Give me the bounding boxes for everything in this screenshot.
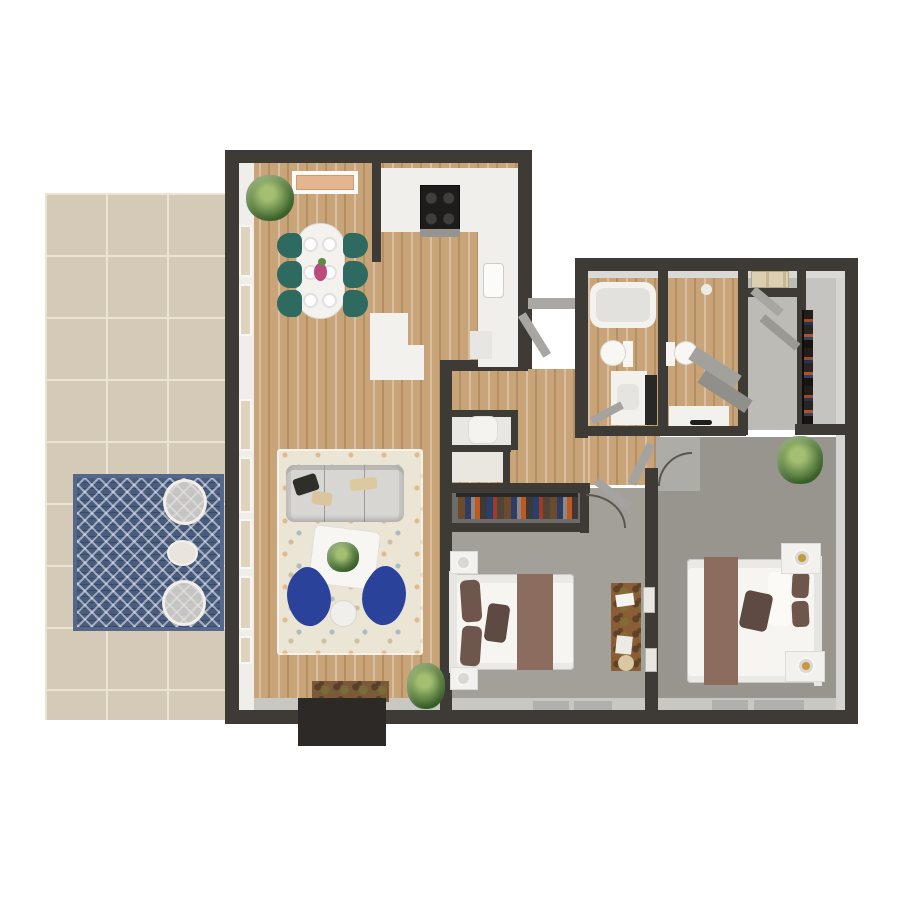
stove-front-panel (420, 229, 460, 237)
wall-top (225, 150, 532, 163)
dining-chair-3 (277, 290, 302, 317)
patio-chair-1 (163, 479, 207, 525)
lamp-2a-shade (798, 554, 806, 562)
place-setting-1 (303, 237, 318, 252)
window-pane-2 (239, 284, 252, 336)
wall-closet-right-bottom (795, 424, 847, 435)
place-setting-2 (322, 237, 337, 252)
wall-closet-b1-bottom (448, 523, 589, 532)
wall-bedroom1-top (448, 483, 590, 493)
toilet-1-bowl (600, 340, 626, 366)
bed-1-pillow-a (460, 579, 483, 622)
dining-chair-2 (277, 261, 302, 288)
bed-2-runner (704, 557, 738, 685)
wall-left (225, 150, 239, 715)
wardrobe-shelf (802, 310, 813, 424)
dishwasher (470, 331, 492, 359)
dining-chair-4 (343, 233, 368, 258)
patio-table (167, 540, 198, 566)
dining-chair-5 (343, 261, 368, 288)
window-pane-7 (239, 636, 252, 664)
wall-bath-left (575, 258, 588, 438)
lamp-2b-shade (802, 662, 810, 670)
faucet-2 (690, 420, 712, 425)
lamp-1b (456, 671, 471, 686)
wall-art (296, 175, 354, 190)
bed-2-pillow-b (791, 601, 809, 628)
wall-utility-mid (448, 445, 511, 452)
wall-utility-right1 (511, 410, 518, 450)
window-pane-4 (239, 457, 252, 513)
kitchen-peninsula-lower (370, 345, 424, 380)
desk-paper (615, 593, 634, 607)
window-pane-6 (239, 576, 252, 630)
wall-bath-top (575, 258, 857, 271)
window-pane-5 (239, 519, 252, 569)
window-pane-3 (239, 399, 252, 451)
bathtub-inner (596, 288, 650, 322)
linen-towels (751, 271, 789, 288)
bed-2-pillow-a (791, 572, 809, 599)
living-plant (407, 663, 445, 709)
dining-chair-1 (277, 233, 302, 258)
dining-chair-6 (343, 290, 368, 317)
kitchen-peninsula-upper (370, 313, 408, 346)
dining-plant (246, 175, 294, 221)
patio-floor (45, 193, 228, 720)
wall-right (845, 258, 858, 715)
wall-frames-1 (643, 587, 655, 613)
desk-lamp (618, 655, 634, 671)
tv-block (298, 698, 386, 746)
place-setting-5 (303, 293, 318, 308)
sofa-pillow-tan-2 (350, 477, 378, 491)
wall-frames-2 (645, 648, 657, 672)
mirror-panel-1 (645, 375, 657, 425)
wall-bath2-bottom (666, 426, 746, 436)
side-table (330, 600, 357, 627)
headboard-1 (449, 571, 457, 673)
bed-1-pillow-b (460, 625, 483, 666)
utility-shelf (458, 453, 500, 479)
patio-chair-2 (162, 580, 206, 626)
window-pane-1 (239, 225, 252, 277)
sofa-pillow-tan-1 (311, 491, 333, 507)
water-heater (468, 416, 498, 444)
bedroom-2-plant (777, 436, 823, 484)
bed-1-runner (517, 574, 553, 670)
stove (420, 185, 460, 232)
floorplan-canvas (0, 0, 900, 900)
desk-laptop (615, 635, 633, 655)
bath-top-wall-face (588, 270, 845, 278)
wall-bath1-bottom (575, 426, 668, 436)
centerpiece-greens (318, 258, 326, 266)
place-setting-6 (322, 293, 337, 308)
closet-clothes-bedroom-1 (458, 497, 578, 519)
coffee-table-plant (327, 542, 359, 572)
wall-dining-kitchen (372, 163, 381, 262)
lamp-1a (456, 555, 471, 570)
bath-2-ceiling-light (701, 284, 712, 295)
kitchen-sink (483, 263, 504, 298)
wall-utility-right2 (503, 450, 510, 483)
